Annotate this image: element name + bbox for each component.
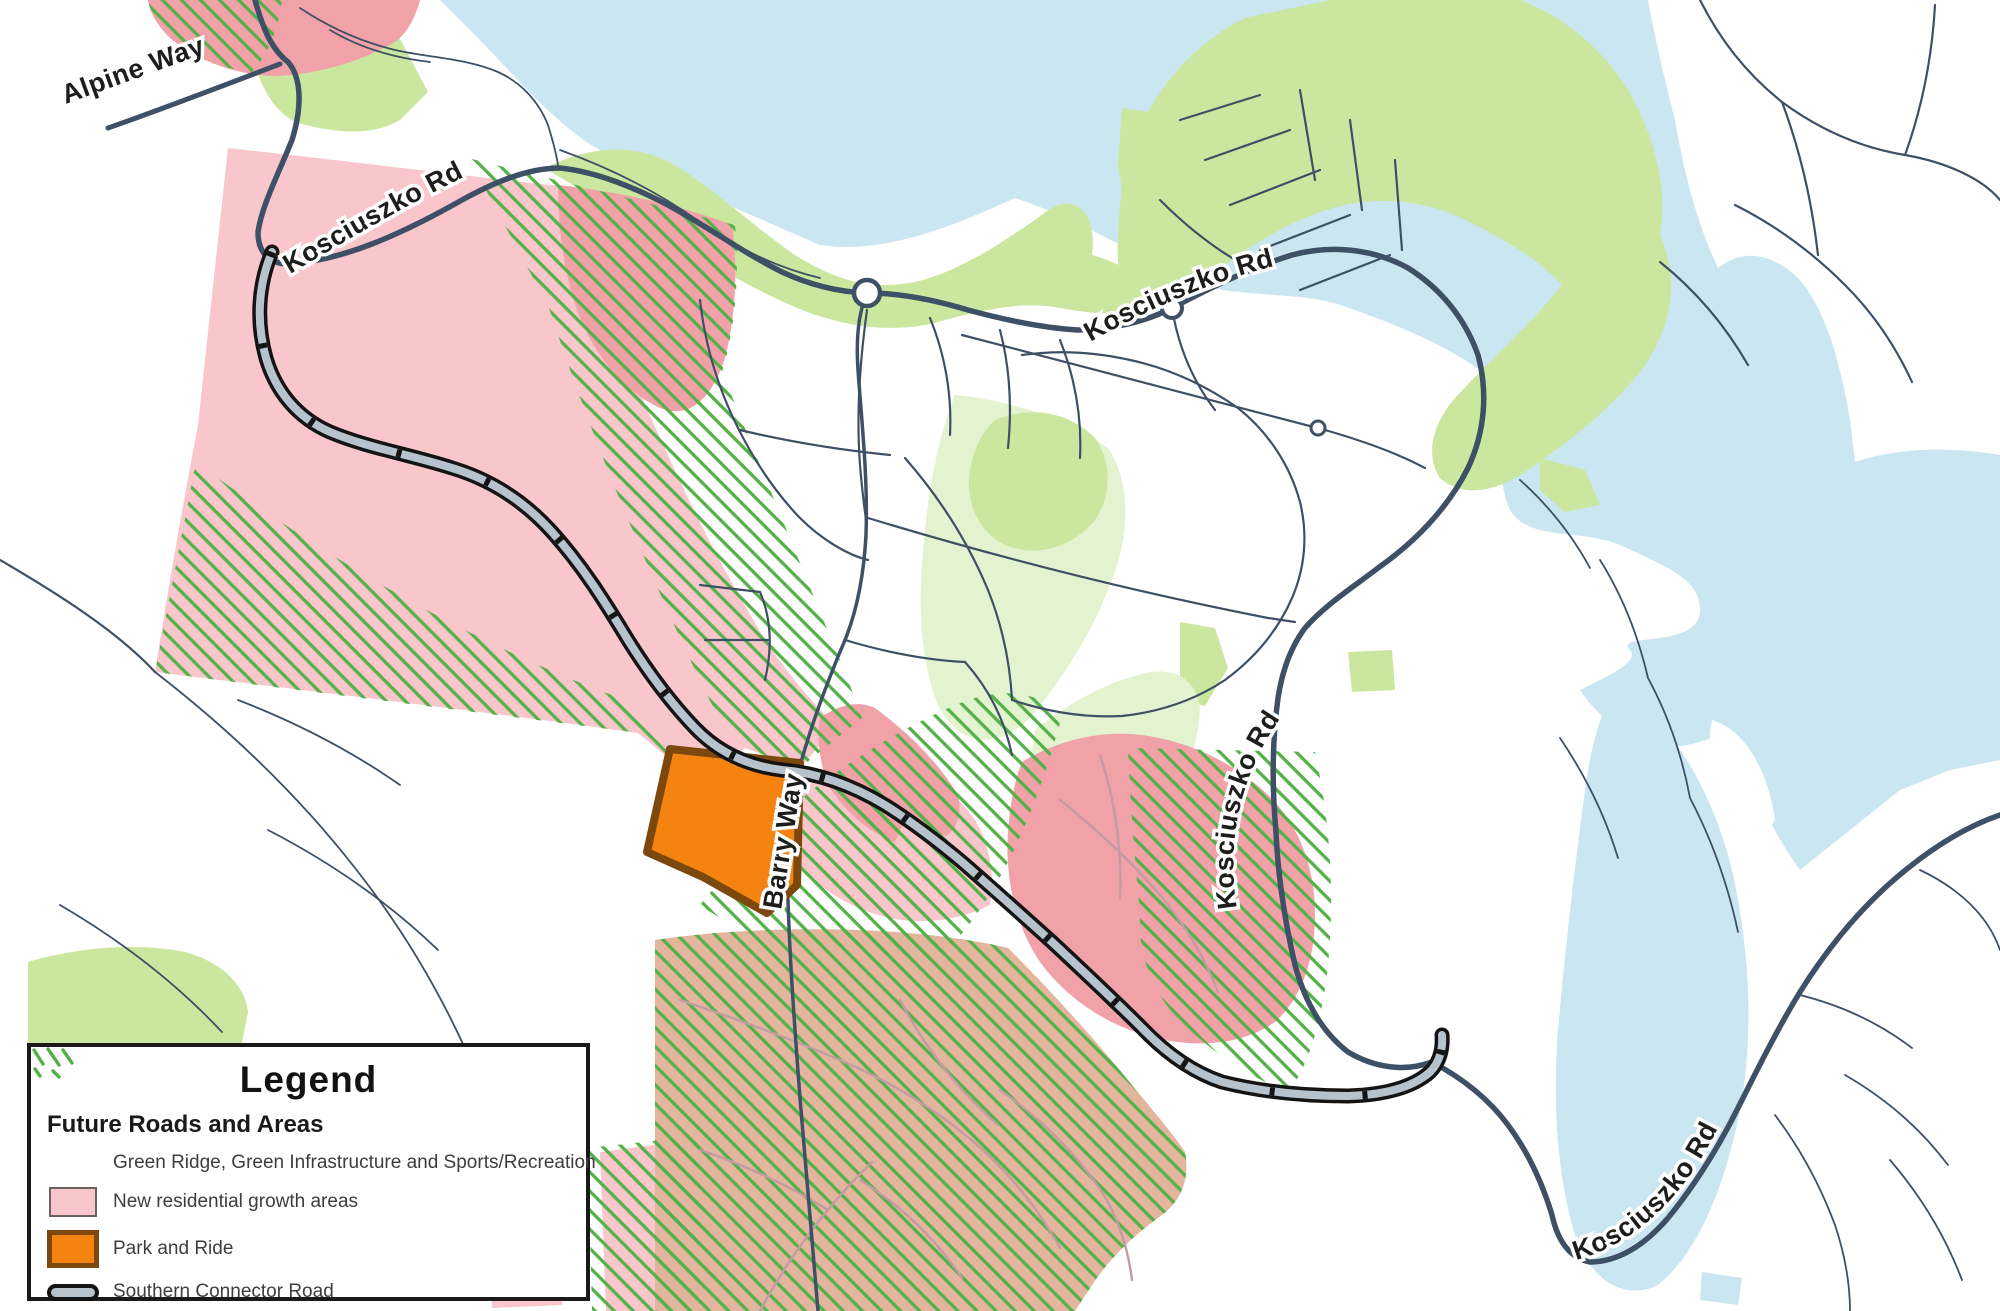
legend-item-park-and-ride: Park and Ride bbox=[47, 1230, 570, 1268]
pink-swatch-icon bbox=[47, 1187, 99, 1217]
orange-swatch-icon bbox=[47, 1230, 99, 1268]
legend-item-residential: New residential growth areas bbox=[47, 1187, 570, 1217]
legend-item-label: Green Ridge, Green Infrastructure and Sp… bbox=[113, 1152, 596, 1174]
legend-item-label: Southern Connector Road bbox=[113, 1281, 334, 1303]
road-symbol-icon bbox=[47, 1284, 99, 1301]
legend-title: Legend bbox=[47, 1059, 570, 1101]
roundabout bbox=[854, 280, 880, 306]
legend-item-green-ridge: Green Ridge, Green Infrastructure and Sp… bbox=[47, 1152, 570, 1174]
cul-de-sac bbox=[1311, 421, 1325, 435]
planning-map: Alpine Way Kosciuszko Rd Kosciuszko Rd K… bbox=[0, 0, 2000, 1311]
legend-item-southern-connector: Southern Connector Road bbox=[47, 1281, 570, 1303]
legend-item-label: New residential growth areas bbox=[113, 1191, 358, 1213]
legend-item-label: Park and Ride bbox=[113, 1238, 233, 1260]
legend-section-title: Future Roads and Areas bbox=[47, 1111, 570, 1139]
legend: Legend Future Roads and Areas Green Ridg… bbox=[27, 1043, 590, 1301]
